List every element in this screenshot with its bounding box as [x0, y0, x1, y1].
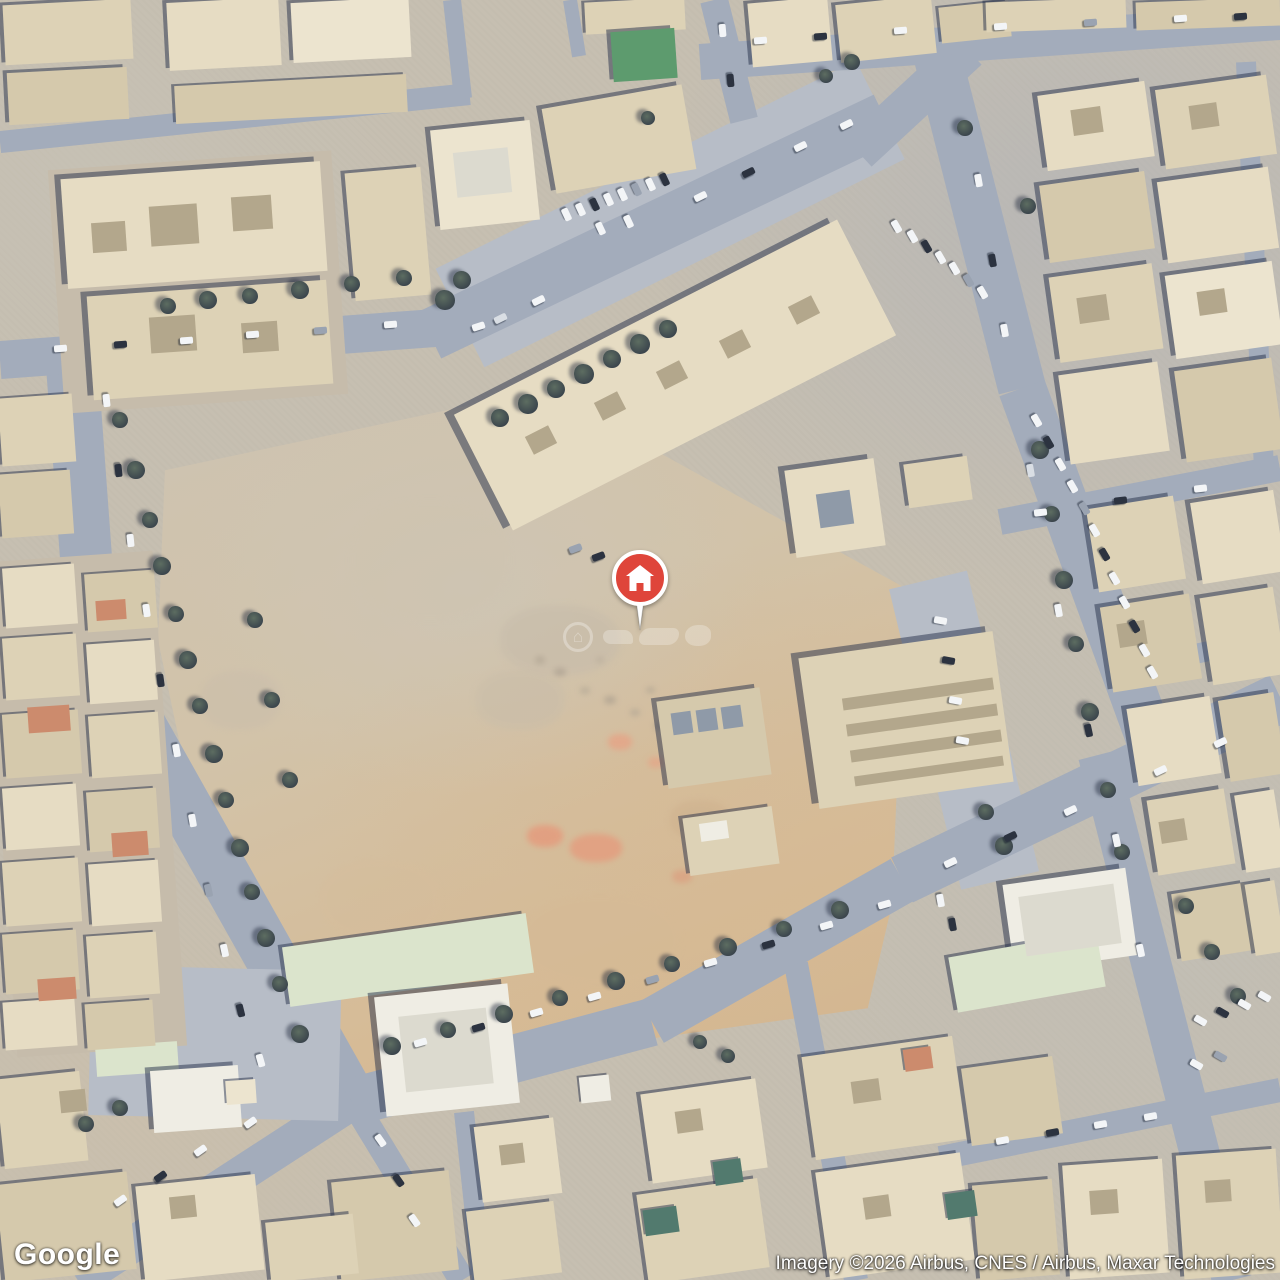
vehicle [314, 327, 327, 335]
vehicle [246, 331, 259, 339]
rooftop-detail [696, 708, 719, 733]
building [712, 1158, 743, 1186]
ground-patch [580, 687, 590, 694]
building [88, 860, 162, 927]
tree [721, 1049, 735, 1063]
ground-patch [630, 709, 640, 716]
tree [247, 612, 263, 628]
vehicle [114, 341, 127, 349]
rooftop-detail [149, 203, 200, 246]
rooftop-detail [1204, 1179, 1231, 1203]
rooftop-detail [816, 490, 854, 528]
rooftop-detail [1089, 1189, 1119, 1215]
tree [192, 698, 208, 714]
tree [603, 350, 621, 368]
rooftop-detail [453, 147, 512, 198]
vehicle [102, 394, 110, 408]
building [135, 1174, 264, 1280]
tree [607, 972, 625, 990]
tree [344, 276, 360, 292]
ground-patch [350, 500, 510, 620]
tree [435, 290, 455, 310]
vehicle [1084, 19, 1097, 27]
vehicle [1213, 1050, 1228, 1063]
vehicle [1257, 990, 1272, 1003]
ground-patch [535, 656, 545, 664]
tree [179, 651, 197, 669]
tree [552, 990, 568, 1006]
vehicle [948, 917, 957, 931]
building [7, 67, 130, 125]
tree [112, 1100, 128, 1116]
vehicle [936, 893, 945, 907]
tree [383, 1037, 401, 1055]
building [2, 998, 77, 1051]
tree [168, 606, 184, 622]
tree [1020, 198, 1036, 214]
building [640, 1078, 767, 1183]
building [37, 977, 76, 1002]
building [642, 1206, 679, 1236]
tree [396, 270, 412, 286]
tree [453, 271, 471, 289]
building [903, 1046, 934, 1072]
tree [1204, 944, 1220, 960]
tree [630, 334, 650, 354]
vehicle [180, 337, 193, 345]
road-segment [443, 0, 472, 99]
rooftop-detail [863, 1194, 892, 1219]
ground-patch [570, 834, 622, 862]
building [1058, 361, 1170, 464]
marker-pin-icon [608, 546, 672, 642]
tree [1081, 703, 1099, 721]
ground-patch [475, 670, 565, 730]
vehicle [1034, 508, 1048, 516]
building [682, 806, 779, 876]
rooftop-detail [169, 1195, 197, 1220]
tree [819, 69, 833, 83]
vehicle [1215, 1006, 1230, 1019]
building [3, 0, 134, 65]
tree [1055, 571, 1073, 589]
rooftop-detail [1158, 818, 1187, 844]
vehicle [1084, 723, 1094, 737]
vehicle [1174, 15, 1187, 23]
rooftop-detail [91, 221, 127, 253]
tree [664, 956, 680, 972]
tree [142, 512, 158, 528]
tree [776, 921, 792, 937]
tree [719, 938, 737, 956]
building [2, 783, 80, 850]
ground-patch [608, 734, 632, 750]
vehicle [1114, 496, 1128, 504]
building [0, 394, 76, 467]
vehicle [153, 1170, 168, 1183]
building [0, 1071, 88, 1169]
building [1234, 789, 1280, 872]
vehicle [220, 943, 230, 957]
tree [1068, 636, 1084, 652]
building [466, 1201, 562, 1280]
ground-patch [604, 696, 616, 704]
building [1136, 0, 1280, 31]
vehicle [906, 229, 919, 244]
tree [112, 412, 128, 428]
vehicle [1237, 998, 1252, 1011]
building [88, 712, 162, 779]
tree [199, 291, 217, 309]
location-marker-pin[interactable] [608, 546, 672, 642]
building [111, 831, 149, 857]
tree [153, 557, 171, 575]
satellite-map[interactable]: ⌂ Google Imagery ©2026 Airbus, CNES / Ai… [0, 0, 1280, 1280]
building [903, 456, 973, 508]
tree [518, 394, 538, 414]
vehicle [156, 674, 165, 688]
tree [641, 111, 655, 125]
vehicle [754, 37, 767, 45]
rooftop-detail [1076, 294, 1109, 324]
ground-patch [554, 668, 566, 676]
tree [291, 281, 309, 299]
tree [291, 1025, 309, 1043]
tree [205, 745, 223, 763]
vehicle [814, 33, 827, 41]
building [84, 1000, 155, 1051]
building [166, 0, 281, 71]
rooftop-detail [1196, 288, 1227, 316]
map-attribution: Imagery ©2026 Airbus, CNES / Airbus, Max… [776, 1253, 1275, 1275]
vehicle [384, 321, 397, 329]
tree [264, 692, 280, 708]
rooftop-detail [851, 1078, 882, 1104]
vehicle [726, 74, 734, 88]
rooftop-detail [149, 314, 197, 353]
building [86, 640, 158, 705]
rooftop-detail [675, 1108, 704, 1133]
vehicle [1193, 1014, 1208, 1027]
vehicle [894, 27, 907, 35]
ground-patch [646, 687, 655, 693]
vehicle [54, 345, 67, 353]
watermark-house-icon: ⌂ [563, 622, 593, 652]
vehicle [890, 219, 903, 234]
tree [547, 380, 565, 398]
building [1190, 490, 1280, 584]
ground-patch [520, 895, 680, 985]
building [944, 1190, 977, 1220]
building [1200, 587, 1280, 685]
building [174, 74, 408, 124]
tree [495, 1005, 513, 1023]
tree [244, 884, 260, 900]
rooftop-detail [231, 195, 273, 232]
vehicle [718, 24, 726, 38]
rooftop-detail [59, 1089, 87, 1114]
tree [1100, 782, 1116, 798]
building [656, 687, 771, 789]
vehicle [1194, 484, 1208, 492]
building [225, 1079, 257, 1105]
tree [231, 839, 249, 857]
tree [574, 364, 594, 384]
vehicle [920, 239, 933, 254]
building [0, 470, 74, 539]
tree [160, 298, 176, 314]
building [1218, 692, 1280, 782]
tree [440, 1022, 456, 1038]
tree [844, 54, 860, 70]
tree [491, 409, 509, 427]
building [579, 1075, 612, 1104]
tree [272, 976, 288, 992]
building [2, 633, 80, 700]
vehicle [934, 250, 947, 265]
vehicle [994, 23, 1007, 31]
tree [127, 461, 145, 479]
building [1126, 696, 1221, 786]
tree [282, 772, 298, 788]
ground-patch [527, 825, 563, 847]
tree [218, 792, 234, 808]
building [265, 1214, 359, 1280]
building [1086, 496, 1186, 593]
rooftop-detail [671, 711, 694, 736]
tree [693, 1035, 707, 1049]
rooftop-detail [1188, 102, 1219, 130]
rooftop-detail [499, 1143, 525, 1166]
tree [831, 901, 849, 919]
vehicle [126, 534, 134, 548]
building [1157, 167, 1279, 264]
tree [242, 288, 258, 304]
tree [78, 1116, 94, 1132]
vehicle [193, 1144, 208, 1157]
building [802, 1036, 967, 1160]
ground-patch [500, 605, 620, 675]
road-segment [915, 52, 1046, 394]
building [1039, 171, 1155, 263]
vehicle [1234, 13, 1247, 21]
tree [978, 804, 994, 820]
rooftop-detail [699, 820, 729, 842]
ground-patch [648, 757, 664, 768]
building [291, 0, 412, 63]
rooftop-detail [1070, 106, 1103, 136]
building [86, 932, 160, 999]
vehicle [948, 261, 961, 276]
vehicle [1054, 603, 1063, 617]
rooftop-detail [721, 705, 744, 730]
tree [957, 120, 973, 136]
building [1174, 358, 1280, 463]
road-segment [563, 0, 586, 57]
vehicle [114, 464, 122, 478]
building [2, 857, 82, 926]
watermark-script [685, 625, 711, 646]
ground-patch [596, 657, 604, 663]
tree [257, 929, 275, 947]
tree [1178, 898, 1194, 914]
building [610, 28, 677, 82]
building [95, 599, 126, 621]
google-logo[interactable]: Google [14, 1238, 120, 1272]
building [2, 564, 78, 629]
tree [659, 320, 677, 338]
building [27, 705, 71, 734]
rooftop-detail [398, 1008, 493, 1093]
